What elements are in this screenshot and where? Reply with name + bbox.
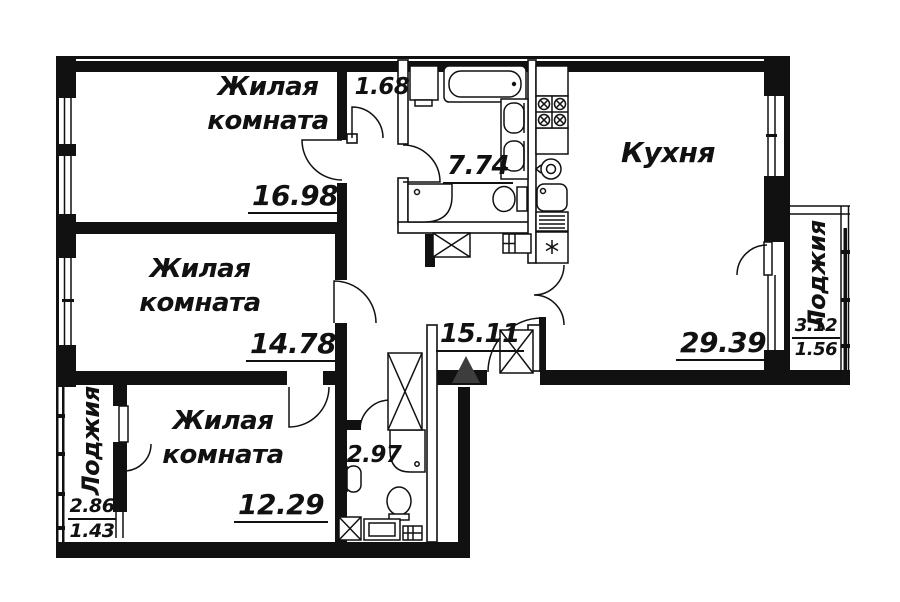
door-living3 (289, 387, 329, 427)
loggia-right-area-reduced: 1.56 (792, 341, 840, 359)
bathtub-icon (444, 66, 526, 102)
room-wc-area: 2.97 (346, 443, 402, 467)
room-bathroom-area: 7.74 (443, 153, 501, 184)
shaft-wc-icon (339, 517, 361, 540)
door-kitchen (534, 265, 564, 325)
window-living1-b (65, 156, 72, 214)
room-living2-name: Жилая комната (130, 252, 270, 321)
room-living1-name: Жилая комната (198, 70, 338, 139)
loggia-left-areas: 2.86 1.43 (68, 497, 116, 541)
window-living3-loggia (116, 512, 123, 538)
corner-shower-bathroom-icon (408, 184, 452, 222)
shaft-bath-icon (433, 233, 470, 257)
room-living1-area: 16.98 (248, 181, 332, 214)
balcony-door-kitchen-arc (737, 245, 767, 275)
apartment-floor-plan: Жилая комната 16.98 Жилая комната 14.78 … (0, 0, 900, 602)
room-living2-area: 14.78 (246, 329, 330, 362)
room-kitchen-name: Кухня (598, 135, 738, 172)
stove-icon (536, 96, 568, 128)
balcony-door-kitchen-panel (764, 242, 772, 275)
loggia-left-area-total: 2.86 (68, 497, 116, 520)
entrance-marker-icon (452, 356, 480, 383)
room-closet-area: 1.68 (353, 75, 411, 99)
window-living1-a (65, 98, 72, 144)
loggia-left-area-reduced: 1.43 (68, 522, 116, 541)
balcony-door-living3-panel (119, 406, 128, 442)
washing-machine-icon (364, 519, 400, 540)
door-living2 (334, 281, 376, 323)
loggia-right-areas: 3.12 1.56 (792, 317, 840, 359)
toilet-wc-icon (387, 487, 411, 520)
wc-sink-icon (346, 466, 361, 492)
door-living1 (302, 140, 342, 180)
shaft-hall-icon (388, 353, 422, 430)
kitchen-sink-icon (537, 184, 567, 211)
door-wc (360, 400, 390, 430)
utility-box-icon (403, 526, 422, 540)
dishwasher-icon (536, 212, 568, 231)
loggia-left-name: Лоджия (76, 381, 108, 501)
room-hallway-area: 15.11 (436, 321, 502, 352)
kettle-icon (536, 159, 561, 179)
room-living3-name: Жилая комната (153, 404, 293, 473)
door-bathroom (403, 145, 440, 182)
loggia-right-area-total: 3.12 (792, 317, 840, 339)
bath-cabinet-icon (410, 66, 438, 106)
room-kitchen-area: 29.39 (676, 328, 760, 361)
electric-panel-icon (503, 234, 531, 253)
toilet-bathroom-icon (493, 187, 527, 212)
room-living3-area: 12.29 (234, 490, 318, 523)
fridge-icon (536, 232, 568, 263)
balcony-door-living3-arc (124, 444, 151, 471)
